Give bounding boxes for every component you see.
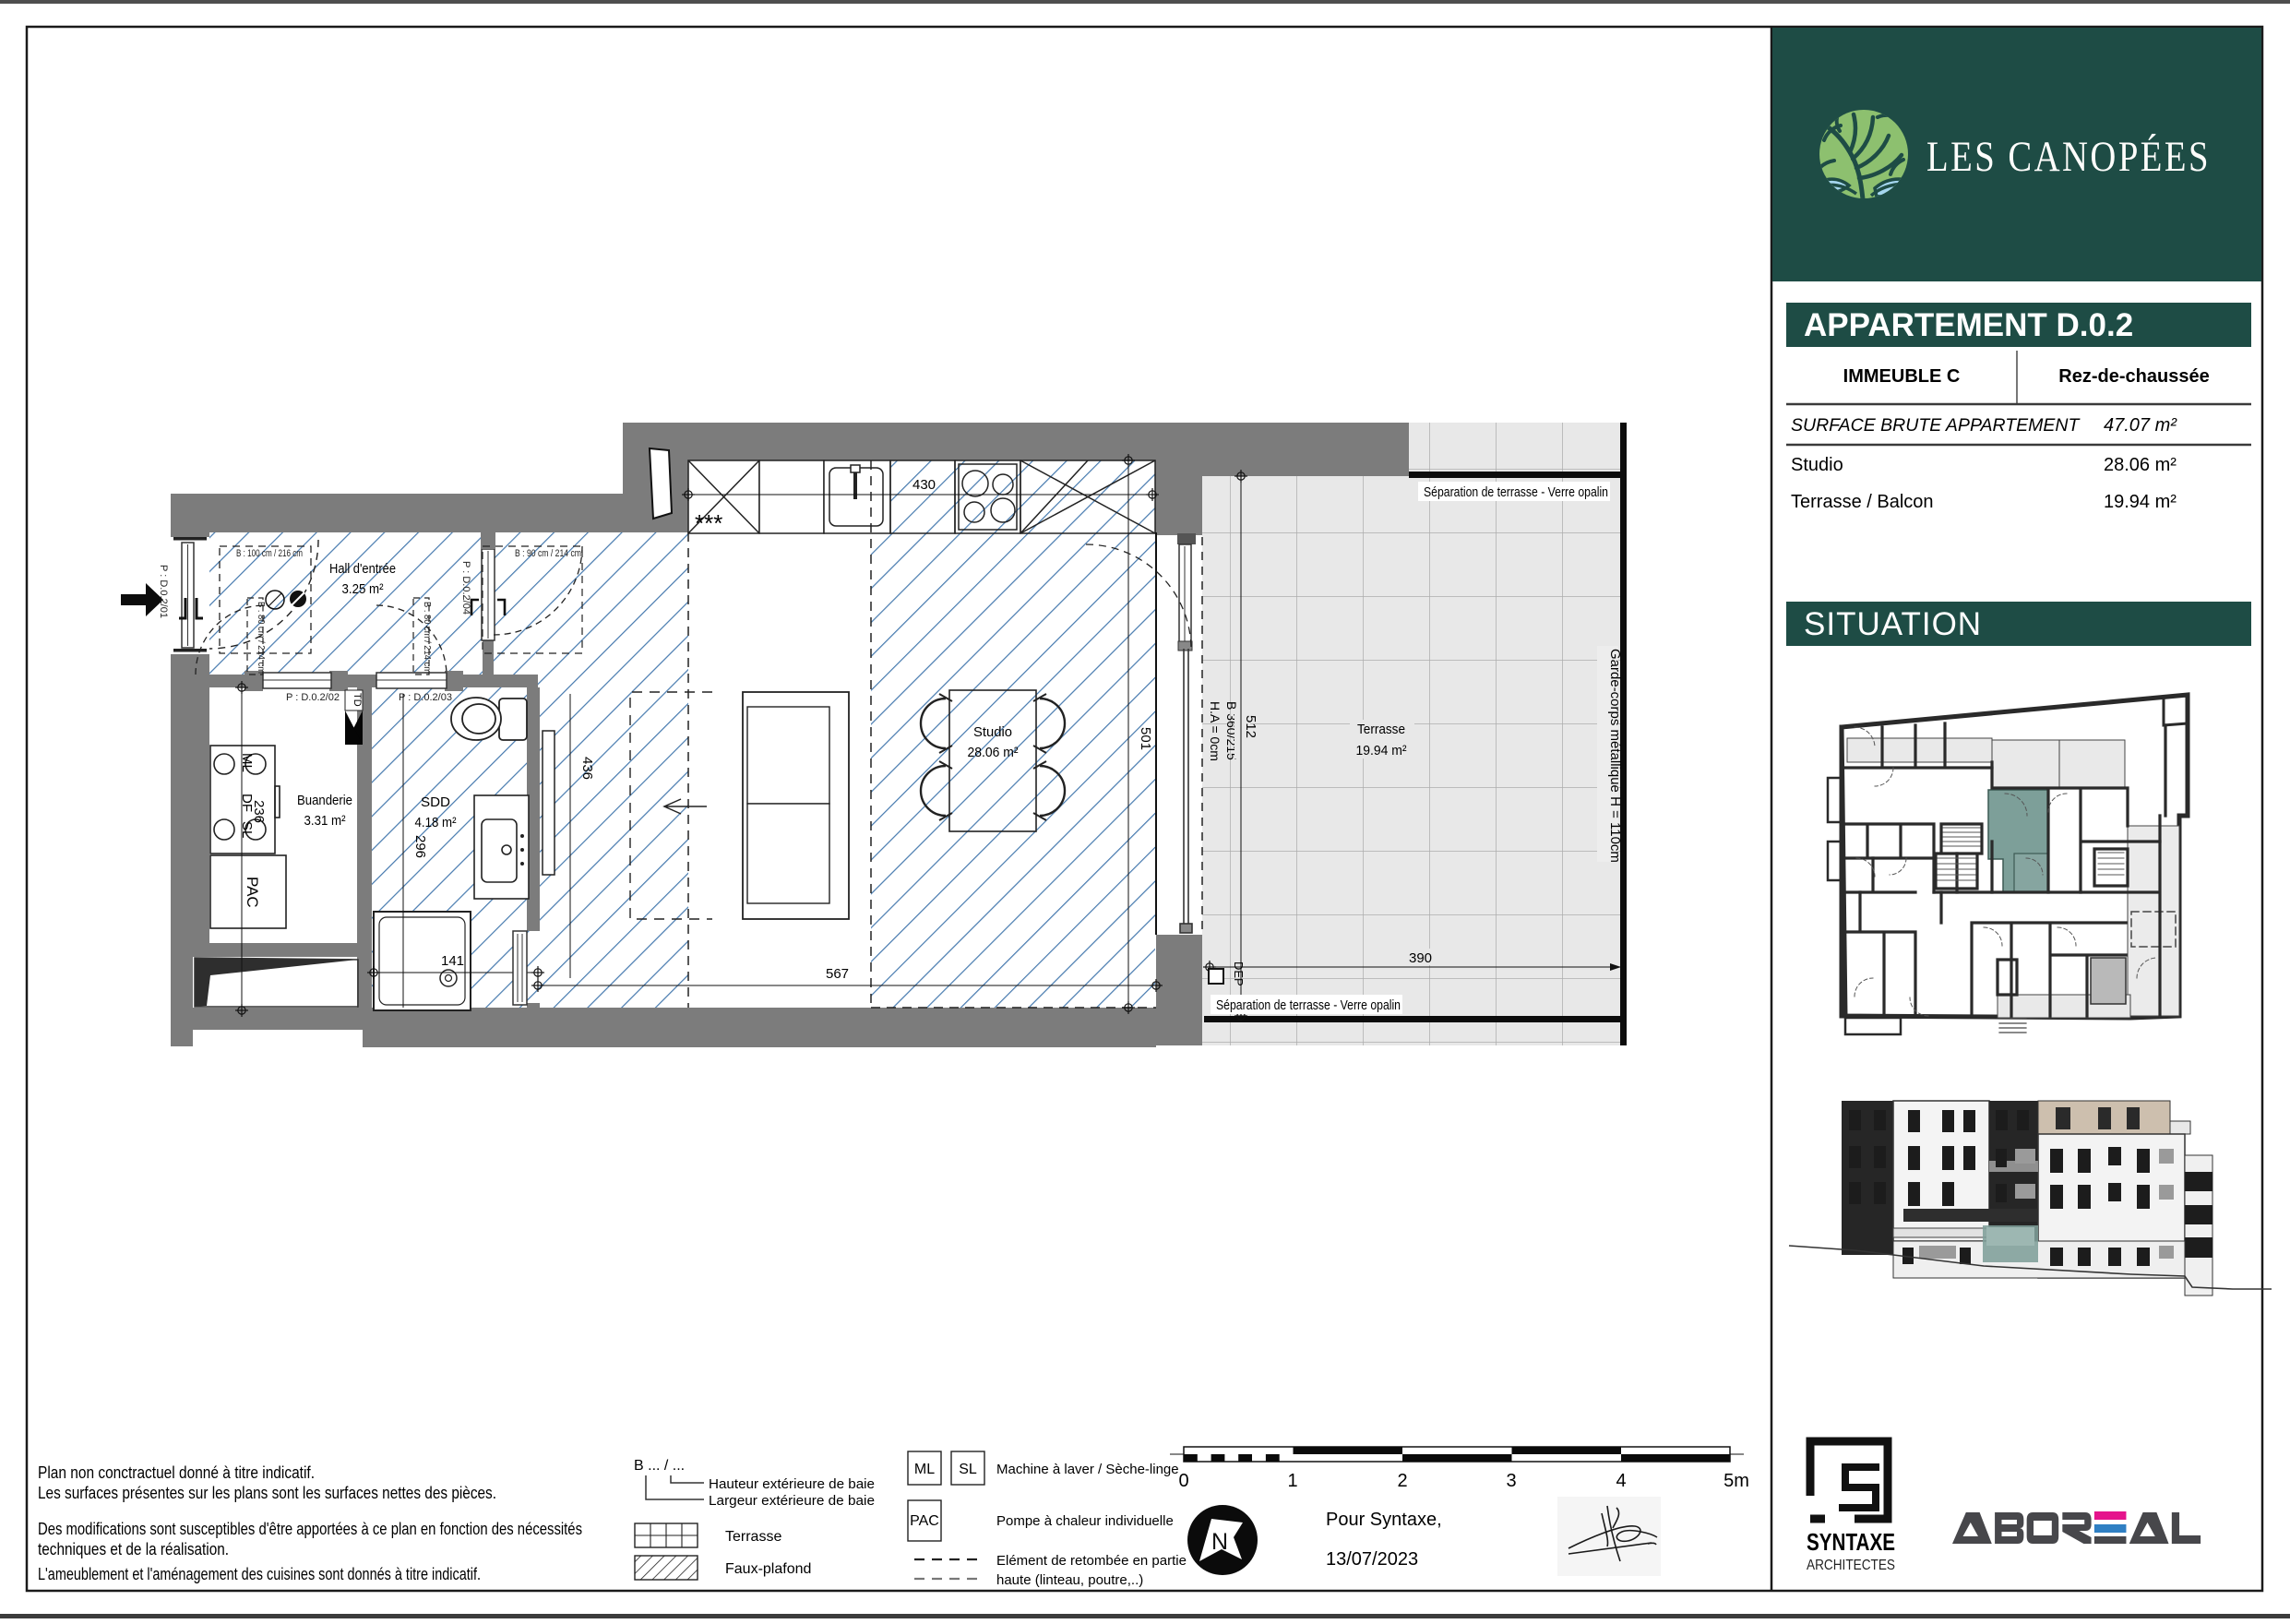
svg-text:2: 2 xyxy=(1397,1471,1407,1491)
svg-text:Buanderie: Buanderie xyxy=(297,793,352,808)
svg-text:430: 430 xyxy=(912,477,936,493)
svg-text:390: 390 xyxy=(1409,950,1432,966)
svg-text:SURFACE BRUTE APPARTEMENT: SURFACE BRUTE APPARTEMENT xyxy=(1791,415,2081,436)
svg-text:TD: TD xyxy=(352,693,363,707)
svg-text:PAC: PAC xyxy=(244,877,261,908)
svg-text:Hauteur extérieure de baie: Hauteur extérieure de baie xyxy=(709,1476,875,1492)
svg-text:techniques et de la réalisatio: techniques et de la réalisation. xyxy=(38,1540,229,1558)
svg-text:B : 80 cm / 214 cm: B : 80 cm / 214 cm xyxy=(422,602,433,674)
svg-text:SITUATION: SITUATION xyxy=(1804,606,1982,642)
svg-text:28.06 m²: 28.06 m² xyxy=(968,745,1019,760)
svg-text:Studio: Studio xyxy=(1791,455,1843,475)
svg-text:Hall d'entrée: Hall d'entrée xyxy=(329,561,396,577)
svg-text:Terrasse: Terrasse xyxy=(725,1529,781,1545)
svg-text:1: 1 xyxy=(1287,1471,1297,1491)
svg-text:B : 100 cm / 216 cm: B : 100 cm / 216 cm xyxy=(236,548,303,559)
svg-text:LES CANOPÉES: LES CANOPÉES xyxy=(1926,133,2211,181)
svg-text:Pompe à chaleur individuelle: Pompe à chaleur individuelle xyxy=(996,1513,1174,1529)
svg-text:Terrasse / Balcon: Terrasse / Balcon xyxy=(1791,492,1934,512)
svg-text:19.94 m²: 19.94 m² xyxy=(1356,743,1407,758)
svg-text:haute (linteau, poutre,..): haute (linteau, poutre,..) xyxy=(996,1572,1143,1588)
svg-text:Séparation de terrasse - Verre: Séparation de terrasse - Verre opalin xyxy=(1216,997,1401,1013)
svg-text:3: 3 xyxy=(1506,1471,1516,1491)
svg-text:B ... / ...: B ... / ... xyxy=(634,1458,685,1474)
svg-text:501: 501 xyxy=(1138,727,1153,750)
svg-text:Des modifications sont suscept: Des modifications sont susceptibles d'êt… xyxy=(38,1520,582,1538)
svg-text:IMMEUBLE C: IMMEUBLE C xyxy=(1843,366,1961,387)
svg-text:Elément de retombée en partie: Elément de retombée en partie xyxy=(996,1553,1187,1569)
svg-text:Garde-corps métallique H = 110: Garde-corps métallique H = 110cm xyxy=(1607,649,1623,863)
svg-text:B : 90 cm / 214 cm: B : 90 cm / 214 cm xyxy=(515,548,581,559)
svg-text:Rez-de-chaussée: Rez-de-chaussée xyxy=(2058,366,2209,387)
svg-text:DEP: DEP xyxy=(1232,961,1246,986)
svg-text:Faux-plafond: Faux-plafond xyxy=(725,1561,811,1577)
svg-text:436: 436 xyxy=(579,757,595,780)
svg-text:P : D.0.2/02: P : D.0.2/02 xyxy=(286,692,340,703)
svg-text:4: 4 xyxy=(1616,1471,1626,1491)
svg-text:APPARTEMENT D.0.2: APPARTEMENT D.0.2 xyxy=(1804,307,2133,343)
svg-text:N: N xyxy=(1211,1529,1228,1555)
svg-text:236: 236 xyxy=(251,800,267,823)
svg-text:Les surfaces présentes sur les: Les surfaces présentes sur les plans son… xyxy=(38,1484,496,1502)
svg-text:0: 0 xyxy=(1178,1471,1188,1491)
svg-text:512: 512 xyxy=(1243,715,1258,738)
svg-text:Largeur extérieure de baie: Largeur extérieure de baie xyxy=(709,1493,875,1509)
svg-text:H.A = 0cm: H.A = 0cm xyxy=(1208,701,1223,761)
svg-text:L'ameublement et l'aménagement: L'ameublement et l'aménagement des cuisi… xyxy=(38,1565,481,1583)
svg-text:P : D.0.2/03: P : D.0.2/03 xyxy=(399,692,452,703)
svg-text:28.06 m²: 28.06 m² xyxy=(2104,455,2177,475)
svg-text:3.31 m²: 3.31 m² xyxy=(304,813,346,829)
svg-text:3.25 m²: 3.25 m² xyxy=(342,581,384,597)
svg-text:***: *** xyxy=(695,509,722,537)
svg-text:Pour Syntaxe,: Pour Syntaxe, xyxy=(1326,1510,1442,1530)
svg-text:Machine à laver / Sèche-linge: Machine à laver / Sèche-linge xyxy=(996,1462,1179,1477)
svg-text:B : 80 cm / 214 cm: B : 80 cm / 214 cm xyxy=(256,602,267,674)
svg-text:Terrasse: Terrasse xyxy=(1357,722,1405,737)
svg-text:SDD: SDD xyxy=(421,794,450,810)
svg-text:P : D.0.2/04: P : D.0.2/04 xyxy=(460,561,471,615)
svg-text:SYNTAXE: SYNTAXE xyxy=(1807,1528,1895,1556)
svg-text:4.18 m²: 4.18 m² xyxy=(415,815,457,830)
svg-text:Plan non conctractuel donné à: Plan non conctractuel donné à titre indi… xyxy=(38,1463,315,1482)
svg-text:SL: SL xyxy=(959,1462,977,1477)
svg-text:Séparation de terrasse - Verre: Séparation de terrasse - Verre opalin xyxy=(1424,484,1608,500)
svg-text:47.07 m²: 47.07 m² xyxy=(2104,415,2177,436)
svg-text:P : D.0.2/01: P : D.0.2/01 xyxy=(158,565,169,618)
svg-text:141: 141 xyxy=(441,953,464,969)
svg-text:19.94 m²: 19.94 m² xyxy=(2104,492,2177,512)
svg-text:567: 567 xyxy=(826,966,849,982)
svg-text:PAC: PAC xyxy=(910,1513,939,1529)
svg-text:ARCHITECTES: ARCHITECTES xyxy=(1807,1558,1895,1573)
svg-text:13/07/2023: 13/07/2023 xyxy=(1326,1549,1418,1570)
svg-text:5m: 5m xyxy=(1723,1471,1749,1491)
svg-text:Studio: Studio xyxy=(973,724,1012,740)
svg-text:ML: ML xyxy=(914,1462,935,1477)
svg-text:296: 296 xyxy=(412,835,428,858)
